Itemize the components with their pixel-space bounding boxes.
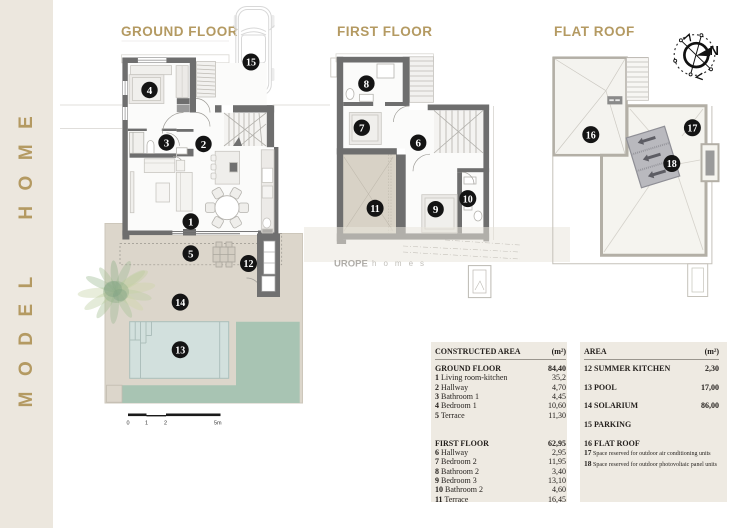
- svg-text:6: 6: [415, 138, 421, 150]
- svg-text:1: 1: [145, 421, 148, 427]
- svg-text:homes: homes: [372, 259, 431, 268]
- svg-text:17: 17: [687, 124, 697, 135]
- svg-text:0: 0: [127, 421, 130, 427]
- svg-text:UROPE: UROPE: [334, 259, 368, 270]
- svg-text:12: 12: [244, 259, 254, 270]
- svg-text:15: 15: [246, 58, 256, 69]
- svg-text:11: 11: [370, 204, 379, 215]
- svg-text:8: 8: [364, 79, 370, 91]
- svg-text:2: 2: [164, 421, 167, 427]
- svg-text:1: 1: [188, 217, 194, 229]
- svg-text:14: 14: [175, 298, 185, 309]
- svg-text:16: 16: [586, 130, 596, 141]
- svg-text:13: 13: [175, 345, 185, 356]
- svg-text:5: 5: [188, 249, 194, 261]
- svg-text:9: 9: [433, 204, 439, 216]
- svg-text:7: 7: [359, 123, 365, 135]
- svg-text:4: 4: [147, 85, 153, 97]
- svg-text:2: 2: [201, 139, 207, 151]
- svg-text:3: 3: [164, 138, 170, 150]
- svg-text:5m: 5m: [214, 421, 222, 427]
- svg-text:10: 10: [463, 194, 473, 205]
- svg-text:N: N: [710, 43, 719, 58]
- svg-text:18: 18: [667, 159, 677, 170]
